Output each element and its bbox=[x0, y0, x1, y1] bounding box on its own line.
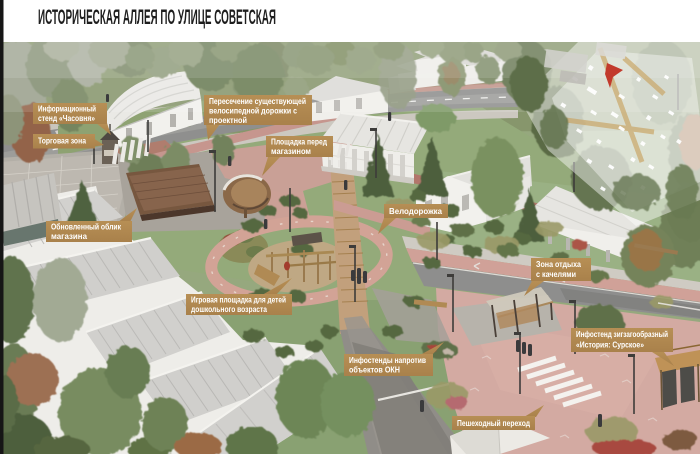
svg-text:Обновленный облик: Обновленный облик bbox=[51, 222, 122, 232]
svg-text:Информационный: Информационный bbox=[38, 104, 96, 114]
svg-text:магазином: магазином bbox=[271, 146, 311, 156]
svg-text:Инфостенд зигзагообразный: Инфостенд зигзагообразный bbox=[576, 329, 668, 339]
svg-text:Игровая площадка для детей: Игровая площадка для детей bbox=[191, 295, 286, 305]
svg-text:Площадка перед: Площадка перед bbox=[271, 137, 327, 147]
svg-text:Пересечение существующей: Пересечение существующей bbox=[209, 96, 306, 106]
svg-text:«История: Сурское»: «История: Сурское» bbox=[576, 339, 644, 349]
svg-text:дошкольного возраста: дошкольного возраста bbox=[191, 304, 267, 314]
svg-text:проектной: проектной bbox=[209, 115, 247, 125]
svg-text:Зона отдыха: Зона отдыха bbox=[536, 259, 581, 269]
svg-text:Пешеходный переход: Пешеходный переход bbox=[457, 418, 530, 428]
svg-text:Торговая зона: Торговая зона bbox=[38, 136, 86, 146]
svg-text:Инфостенды напротив: Инфостенды напротив bbox=[349, 355, 426, 365]
svg-text:объектов ОКН: объектов ОКН bbox=[349, 365, 400, 375]
svg-text:стенд «Часовня»: стенд «Часовня» bbox=[38, 113, 95, 123]
svg-text:ИСТОРИЧЕСКАЯ АЛЛЕЯ ПО УЛИЦЕ СО: ИСТОРИЧЕСКАЯ АЛЛЕЯ ПО УЛИЦЕ СОВЕТСКАЯ bbox=[38, 6, 276, 29]
svg-text:магазина: магазина bbox=[51, 231, 87, 241]
svg-text:Велодорожка: Велодорожка bbox=[389, 206, 442, 216]
svg-text:велосипедной дорожки с: велосипедной дорожки с bbox=[209, 106, 297, 116]
svg-text:с качелями: с качелями bbox=[536, 269, 576, 279]
